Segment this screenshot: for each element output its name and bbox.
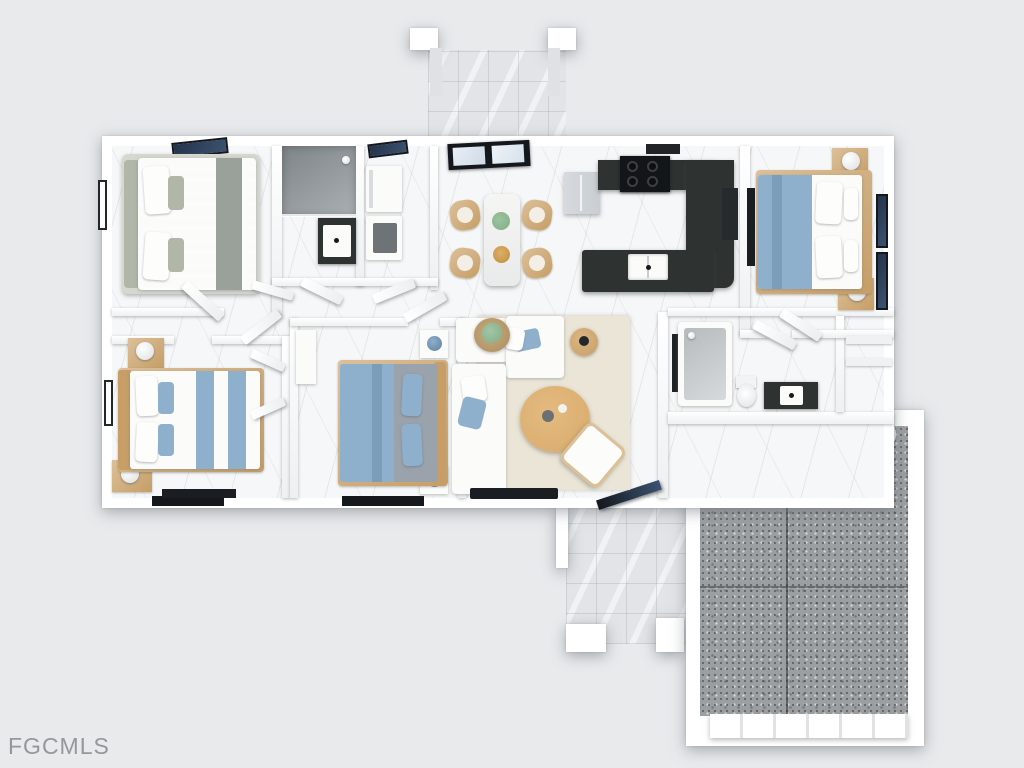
wall-laundry-foyer [430,146,438,290]
accent-pillow-blue [158,424,174,456]
wall-living-garage [658,312,668,498]
blue-pillow [401,424,423,467]
front-door [447,140,530,170]
pillow [844,240,858,272]
refrigerator [564,172,600,214]
bed2-window-right-upper [876,194,888,248]
range-hood [646,144,680,154]
coffee-table-decor-small [558,404,567,413]
entry-pillar-right [548,48,560,96]
bed2 [756,170,872,294]
washer-control-panel [369,170,373,208]
sink-faucet [646,265,651,270]
chair-seat [528,254,546,272]
blue-duvet [340,364,394,482]
shower-head [342,156,350,164]
plant-leaves [482,323,502,343]
entry-pillar-left [430,48,442,96]
front-door-glass-left [453,146,486,166]
refrigerator-handle [580,175,582,211]
table-bowl [493,246,510,263]
blue-duvet [758,175,812,289]
burner [627,176,638,187]
island-sink [628,254,668,280]
entry-walkway-tile [428,50,566,142]
bed2-lamp-top [842,152,860,170]
bed4-window-south [342,496,424,506]
linen-closet-shelf [846,358,892,366]
burner [647,161,658,172]
bed3-lamp-top [136,342,154,360]
wall-bed4-north [290,318,408,326]
blue-band [228,371,246,469]
duvet-drape [372,364,382,482]
burner [627,161,638,172]
duvet-drape [772,175,782,289]
tub-shower-head [688,332,695,339]
vanity-faucet [334,238,339,243]
pillow [844,188,858,220]
dryer [366,216,402,260]
bed1-wall-art [98,180,107,230]
wall-bed3-east [282,336,290,498]
washer [366,166,402,212]
front-door-glass-right [492,144,525,164]
master-bedroom-bed [122,154,260,294]
bed4 [338,360,448,486]
garage-floor-joint-horizontal [700,586,908,588]
master-vanity [318,218,356,264]
chair-seat [528,206,546,224]
pillow [815,181,843,224]
living-tv-console [470,488,558,499]
dryer-door [373,223,397,253]
chair-seat [456,254,474,272]
side-table-decor [579,336,589,346]
bath2-vanity [764,382,818,409]
bath2-toilet-bowl [737,384,756,407]
accent-pillow [168,238,184,272]
entry-pillar-cap-left [410,28,438,50]
pillow [135,421,159,462]
shower-glass-edge [282,214,356,217]
blue-band [196,371,214,469]
chair-seat [456,206,474,224]
accent-pillow [168,176,184,210]
accent-pillow-blue [158,382,174,414]
basket-plant [474,318,510,352]
lanai-wall-bottom-left [566,624,606,652]
vanity-faucet [789,393,794,398]
dining-table [484,194,520,286]
pillow [135,375,159,416]
bed4-decor-top [427,336,442,351]
burner [647,176,658,187]
coffee-table-decor [542,410,554,422]
bath2-tub [678,322,732,406]
bed3-wall-tv [162,489,236,498]
bed3 [118,368,264,472]
bed2-wall-tv [747,188,755,266]
lanai-wall-bottom-right [656,618,684,652]
linen-closet-shelf [846,336,892,344]
fgcmls-watermark: FGCMLS [8,733,110,760]
wall-bath2-south [668,412,894,424]
bed4-dresser [296,330,316,384]
pillow [815,235,843,278]
side-table [570,328,598,356]
table-plant [492,212,510,230]
kitchen-tall-panel [722,188,738,240]
bed2-window-right-lower [876,252,888,310]
lanai-wall-left [556,504,568,568]
blue-pillow [401,374,423,417]
entry-pillar-cap-right [548,28,576,50]
garage-door [710,714,908,738]
watermark-text: FGCMLS [8,733,110,759]
bed3-wall-art [104,380,113,426]
stove-cooktop [620,156,670,192]
blanket [216,158,242,290]
wall-bath1-laundry [356,146,364,286]
floor-plan-render: FGCMLS [0,0,1024,768]
